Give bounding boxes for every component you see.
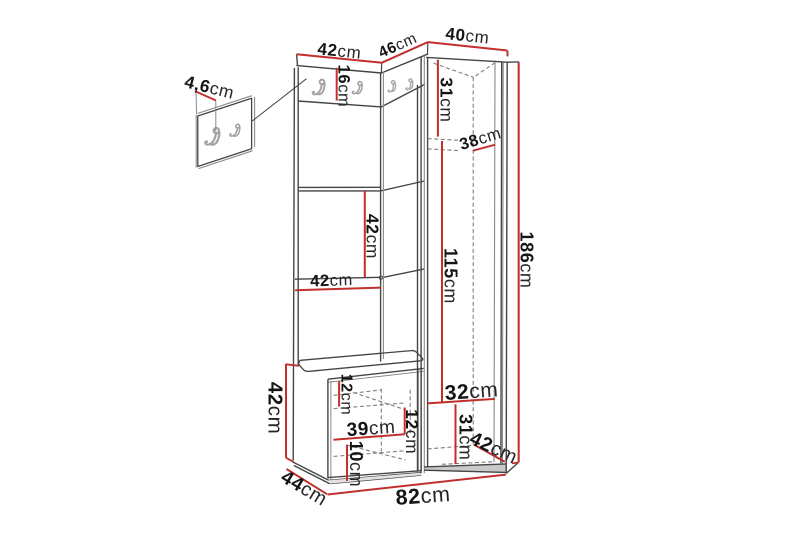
- svg-text:31cm: 31cm: [436, 77, 456, 122]
- svg-text:39cm: 39cm: [346, 417, 396, 441]
- svg-text:186cm: 186cm: [517, 231, 537, 288]
- svg-text:16cm: 16cm: [335, 65, 353, 108]
- svg-text:32cm: 32cm: [444, 378, 499, 405]
- svg-text:115cm: 115cm: [441, 248, 461, 304]
- svg-text:42cm: 42cm: [310, 271, 353, 290]
- svg-text:12cm: 12cm: [402, 409, 422, 454]
- svg-text:12cm: 12cm: [338, 374, 355, 416]
- svg-text:82cm: 82cm: [395, 482, 452, 510]
- svg-text:10cm: 10cm: [346, 441, 366, 487]
- svg-text:42cm: 42cm: [362, 214, 382, 259]
- svg-text:42cm: 42cm: [264, 382, 287, 435]
